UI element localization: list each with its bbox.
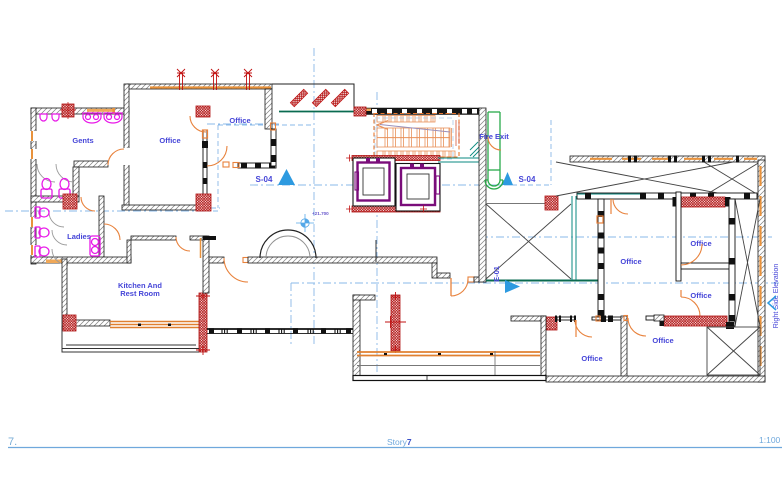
- svg-text:Office: Office: [690, 239, 711, 248]
- svg-text:7.: 7.: [8, 436, 17, 448]
- svg-text:E-01: E-01: [492, 266, 501, 282]
- svg-text:S-04: S-04: [519, 175, 536, 184]
- svg-text:1:100: 1:100: [759, 435, 781, 445]
- svg-text:Office: Office: [652, 336, 673, 345]
- svg-text:Office: Office: [229, 116, 250, 125]
- svg-text:Office: Office: [159, 136, 180, 145]
- svg-text:Office: Office: [581, 354, 602, 363]
- svg-text:Ladies: Ladies: [67, 232, 91, 241]
- svg-text:S-04: S-04: [256, 175, 273, 184]
- svg-text:+21.700: +21.700: [312, 211, 329, 216]
- svg-text:Gents: Gents: [72, 136, 93, 145]
- svg-text:Office: Office: [620, 257, 641, 266]
- svg-text:Rest Room: Rest Room: [120, 289, 160, 298]
- svg-text:Fire Exit: Fire Exit: [479, 132, 509, 141]
- svg-text:Story7: Story7: [387, 437, 412, 447]
- svg-text:Office: Office: [690, 291, 711, 300]
